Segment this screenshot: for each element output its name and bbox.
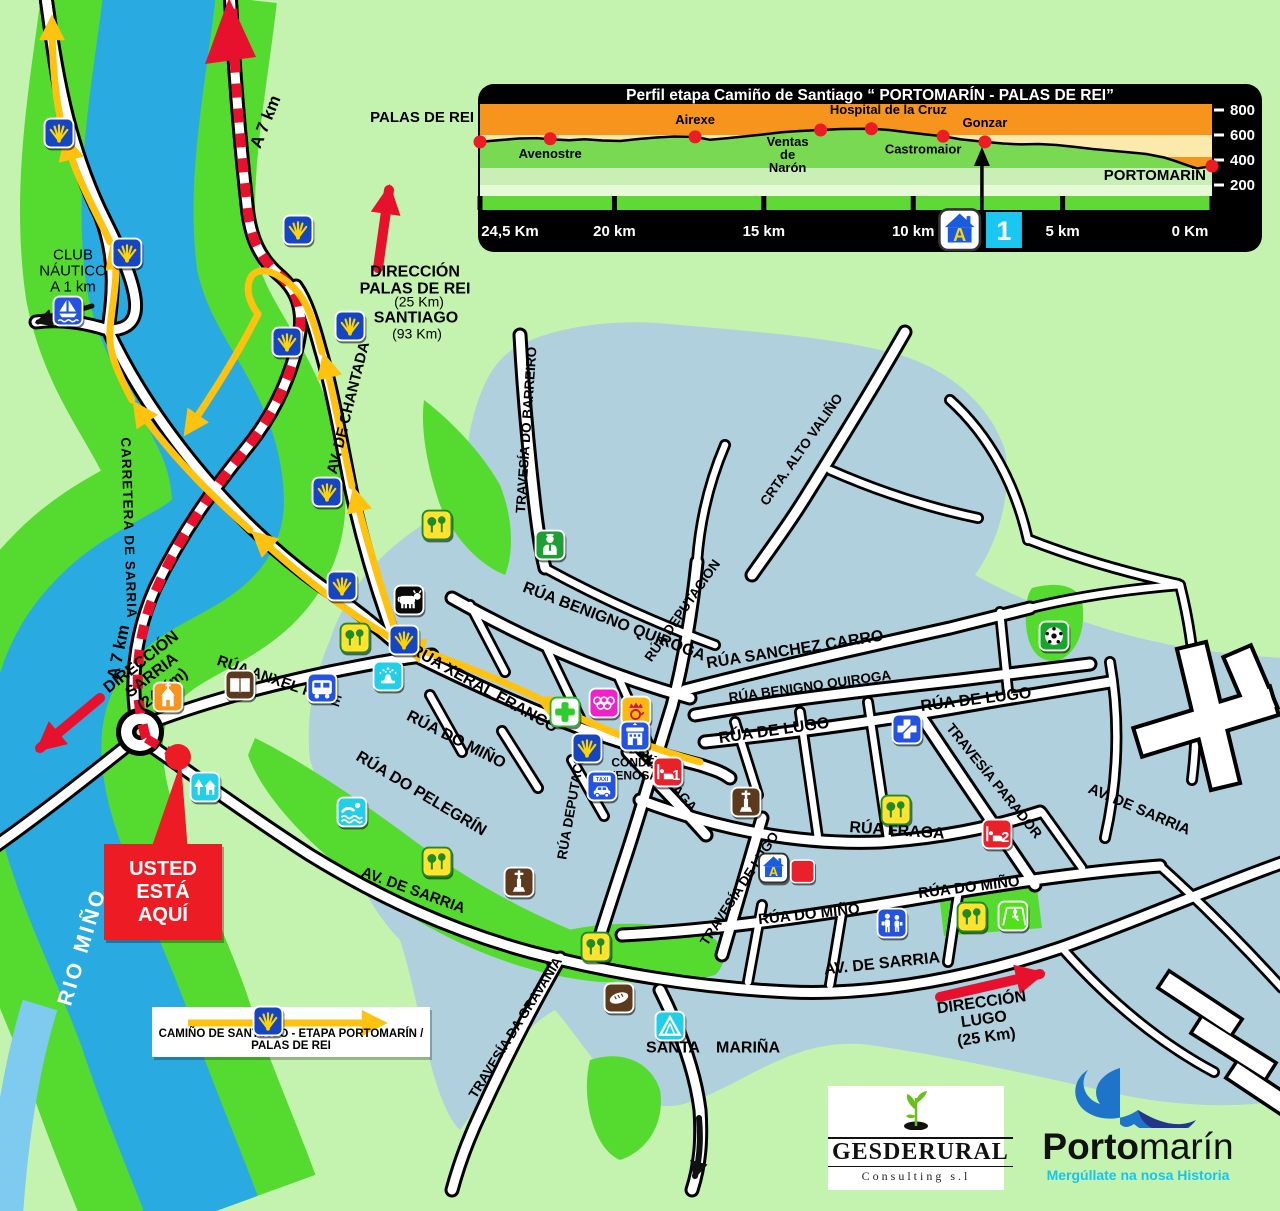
waypoint-label: Hospital de la Cruz [830,102,948,117]
direccion-palas-arrow [378,190,389,268]
x-tick-label: 15 km [743,223,786,240]
book-icon [225,670,256,701]
waypoint-dot [1206,160,1219,173]
portomarin-tourist-map: CAMIÑO DE SANTIAGO - ETAPA PORTOMARÍN / … [0,0,1280,1211]
rua-de-lugo-2-label: RÚA DE LUGO [920,685,1033,716]
waypoint-label: Avenostre [519,146,582,161]
gesderural-logo: GESDERURAL Consulting s.l [828,1086,1004,1190]
x-tick-label: 0 Km [1172,223,1209,240]
taxi-icon: TAXI [587,771,618,802]
rings-icon [589,688,620,719]
pool-icon [337,797,368,828]
park-icon [581,932,612,963]
hotel-icon: 1 [653,757,684,788]
sailboat-icon [53,296,84,327]
palas-distance-label: (25 Km) [394,294,444,309]
portomarin-swoosh-icon [1028,1062,1248,1128]
rua-do-mino-2-label: RÚA DO MIÑO [757,902,860,929]
hospital-icon [892,714,923,745]
park-icon [422,847,453,878]
shell-icon [272,327,303,358]
shell-icon [335,311,366,342]
you-are-here-dot [165,744,191,770]
park-icon [881,795,912,826]
you-are-here-pointer [150,762,188,852]
waypoint-label: Ventas [767,134,809,149]
rua-do-mino-label: RÚA DO MIÑO [404,708,509,773]
club-nautico-label: CLUB NÁUTICO A 1 km [39,248,107,297]
svg-text:1: 1 [672,768,680,784]
waypoint-dot [978,135,991,148]
pharmacy-icon [550,697,581,728]
townhall-icon [620,721,651,752]
waypoint-dot [474,135,487,148]
y-tick-label: 200 [1230,177,1255,194]
fortress-church-structure [1152,660,1260,772]
waypoint-label: PORTOMARÍN [1104,167,1206,184]
albergue-chart-icon: A [939,209,980,250]
x-tick-label: 20 km [593,223,636,240]
rua-sanchez-carro-label: RÚA SANCHEZ CARRO [705,627,884,672]
hotel-icon: 2 [982,819,1013,850]
svg-text:A: A [769,864,778,879]
bakery-icon [604,983,635,1014]
x-tick-label: 10 km [892,223,935,240]
soccer-icon [1039,621,1070,652]
y-tick-label: 600 [1230,127,1255,144]
terrain-fill [480,129,1212,168]
x-tick-label: 5 km [1046,223,1080,240]
park-icon [340,623,371,654]
carretera-de-sarria-label: CARRETERA DE SARRIA [118,437,139,619]
you-are-here-box: USTED ESTÁ AQUÍ [104,844,222,940]
park-icon [422,510,453,541]
waypoint-dot [544,132,557,145]
santiago-distance-label: (93 Km) [392,326,442,341]
direccion-sarria-arrow [40,698,100,748]
town-area [309,322,1280,1130]
y-tick-label: 800 [1230,102,1255,119]
waypoint-label: Narón [769,160,807,175]
red-route-arrowhead [205,0,256,64]
monument-icon [731,787,762,818]
albergue-icon: A [758,853,816,884]
camping-icon [655,1011,686,1042]
shell-icon [389,625,420,656]
profile-line [480,129,1212,169]
portomarin-tagline: Mergúllate na nosa Historia [1028,1167,1248,1183]
stage-number: 1 [996,216,1011,246]
waypoint-label: Castromaior [885,141,962,156]
santiago-label: SANTIAGO [374,309,458,326]
swing-icon [998,901,1029,932]
portomarin-logo: Portomarín Mergúllate na nosa Historia [1028,1062,1248,1202]
gesderural-subtitle: Consulting s.l [862,1169,971,1183]
travesia-da-gravania-label: TRAVESÍA DA GRAVANÍA [467,955,566,1101]
svg-text:A: A [953,225,966,245]
rua-de-lugo-label: RÚA DE LUGO [718,715,831,748]
rua-benigno-quiroga-2-label: RÚA BENIGNO QUIROGA [728,668,892,705]
rua-do-pelegrin-label: RÚA DO PELEGRÍN [353,748,489,839]
travesia-de-lugo-label: TRAVESÍA DE LUGO [698,830,782,949]
waypoint-label: de [780,147,795,162]
waypoint-dot [814,124,827,137]
travesia-do-barreiro-label: TRAVESÍA DO BARREIRO [514,346,540,513]
marina-label: MARIÑA [716,1039,780,1056]
a-7-km-label-low: A 7 km [104,623,133,681]
direccion-palas-de-rei-label: DIRECCIÓN PALAS DE REI [360,264,471,299]
crta-alto-valino-label: CRTA. ALTO VALIÑO [758,391,846,508]
parkhouse-icon [190,772,221,803]
santa-marina-arrow [695,1118,700,1176]
camino-red-route [138,0,301,756]
waypoint-dot [937,130,950,143]
av-de-sarria-e-label: AV. DE SARRIA [1086,781,1193,839]
portomarin-name: Portomarín [1028,1128,1248,1165]
av-de-sarria-c-label: AV. DE SARRIA [823,949,941,978]
a-7-km-label-top: A 7 km [247,93,285,151]
waypoint-label: Gonzar [963,115,1008,130]
waypoint-dot [865,122,878,135]
legend: CAMIÑO DE SANTIAGO - ETAPA PORTOMARÍN / … [152,1007,430,1057]
shell-icon [44,118,75,149]
svg-text:TAXI: TAXI [596,777,609,783]
stage-number-badge [986,212,1022,248]
rua-do-mino-3-label: RÚA DO MIÑO [917,874,1020,902]
direccion-lugo-arrow [940,974,1040,997]
fountain-icon [373,661,404,692]
rua-xeral-franco-label: RÚA XERAL FRANCO [408,641,561,736]
waypoint-label: Airexe [675,112,715,127]
shell-icon [253,1006,284,1037]
chart-title: Perfil etapa Camiño de Santiago “ PORTOM… [626,87,1114,104]
roundabout [116,708,164,756]
cow-icon [394,585,425,616]
hotel-red-square [790,858,816,884]
park-icon [957,902,988,933]
av-de-chantada-label: AV. DE CHANTADA [325,340,374,475]
svg-text:2: 2 [1001,830,1009,846]
direccion-lugo-label: DIRECCIÓN LUGO (25 Km) [936,988,1032,1052]
shell-icon [572,733,603,764]
chart-panel [478,84,1262,252]
legend-text: CAMIÑO DE SANTIAGO - ETAPA PORTOMARÍN / … [152,1028,430,1052]
bus-icon [307,673,338,704]
monument-icon [504,867,535,898]
shell-icon [112,238,143,269]
gesderural-name: GESDERURAL [828,1137,1013,1167]
shell-icon [312,477,343,508]
waypoint-label: PALAS DE REI [370,109,474,126]
rua-deputacion-upper-label: RÚA DEPUTACIÓN [642,557,723,664]
school-icon [877,908,908,939]
river-side-channel [5,1005,40,1211]
shell-icon [327,571,358,602]
plant-icon [886,1086,946,1130]
rua-benigno-quiroga-label: RÚA BENIGNO QUIROGA [520,579,707,665]
doctor-icon [535,530,566,561]
waypoint-dot [689,130,702,143]
shell-icon [283,215,314,246]
x-tick-label: 24,5 Km [481,223,539,240]
camino-yellow-arrows [52,22,700,762]
santa-label: SANTA [646,1039,700,1056]
y-tick-label: 400 [1230,152,1255,169]
church-icon [153,682,184,713]
